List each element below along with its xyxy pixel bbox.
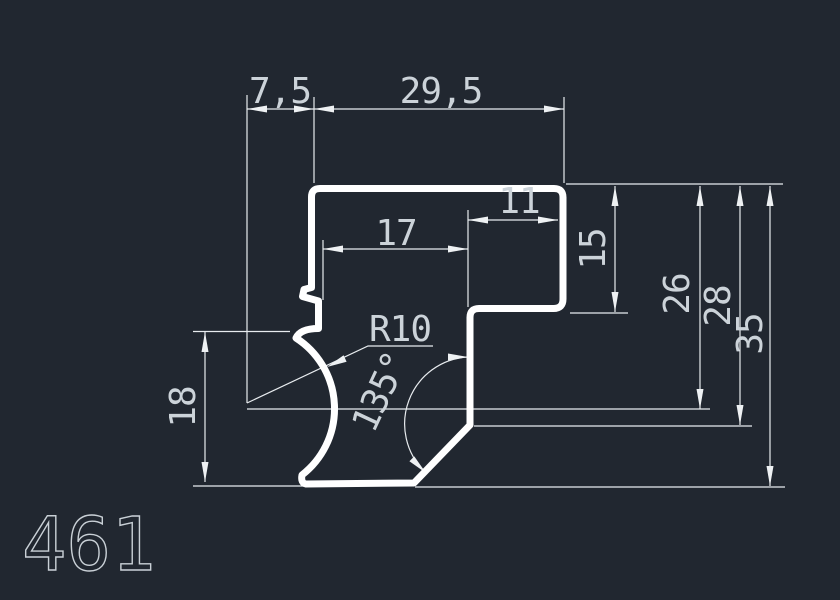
arrow-29-5-left [314,106,334,113]
arrow-11-left [468,217,488,224]
arrow-17-left [323,246,343,253]
dim-label-15: 15 [573,228,614,269]
angle-arc-135 [405,357,468,472]
arrow-15-top [612,186,619,206]
arrow-17-right [448,246,468,253]
arrow-11-right [538,217,558,224]
angle-label: 135° [345,346,417,438]
dim-label-7-5: 7,5 [249,71,311,112]
arrow-18-bottom [202,462,209,482]
arrow-26-bottom [697,389,704,409]
arrow-28-bottom [737,405,744,425]
arrow-35-top [767,186,774,206]
dim-label-17: 17 [375,213,416,254]
dim-label-26: 26 [657,273,698,314]
arrow-26-top [697,186,704,206]
arrow-15-bottom [612,292,619,312]
radius-label: R10 [369,309,431,350]
arrow-28-top [737,186,744,206]
arrow-29-5-right [544,106,564,113]
arrow-angle-top [448,354,468,361]
profile-number: 461 [22,502,156,588]
cad-drawing: 7,5 29,5 17 11 15 26 28 35 18 R10 135° 4… [0,0,840,600]
arrow-radius-leader [327,355,347,367]
arrow-35-bottom [767,466,774,486]
dim-label-29-5: 29,5 [400,71,483,112]
dim-label-11: 11 [498,181,539,222]
dim-label-18: 18 [163,386,204,427]
arrow-18-top [202,332,209,352]
dim-label-35: 35 [730,313,771,354]
